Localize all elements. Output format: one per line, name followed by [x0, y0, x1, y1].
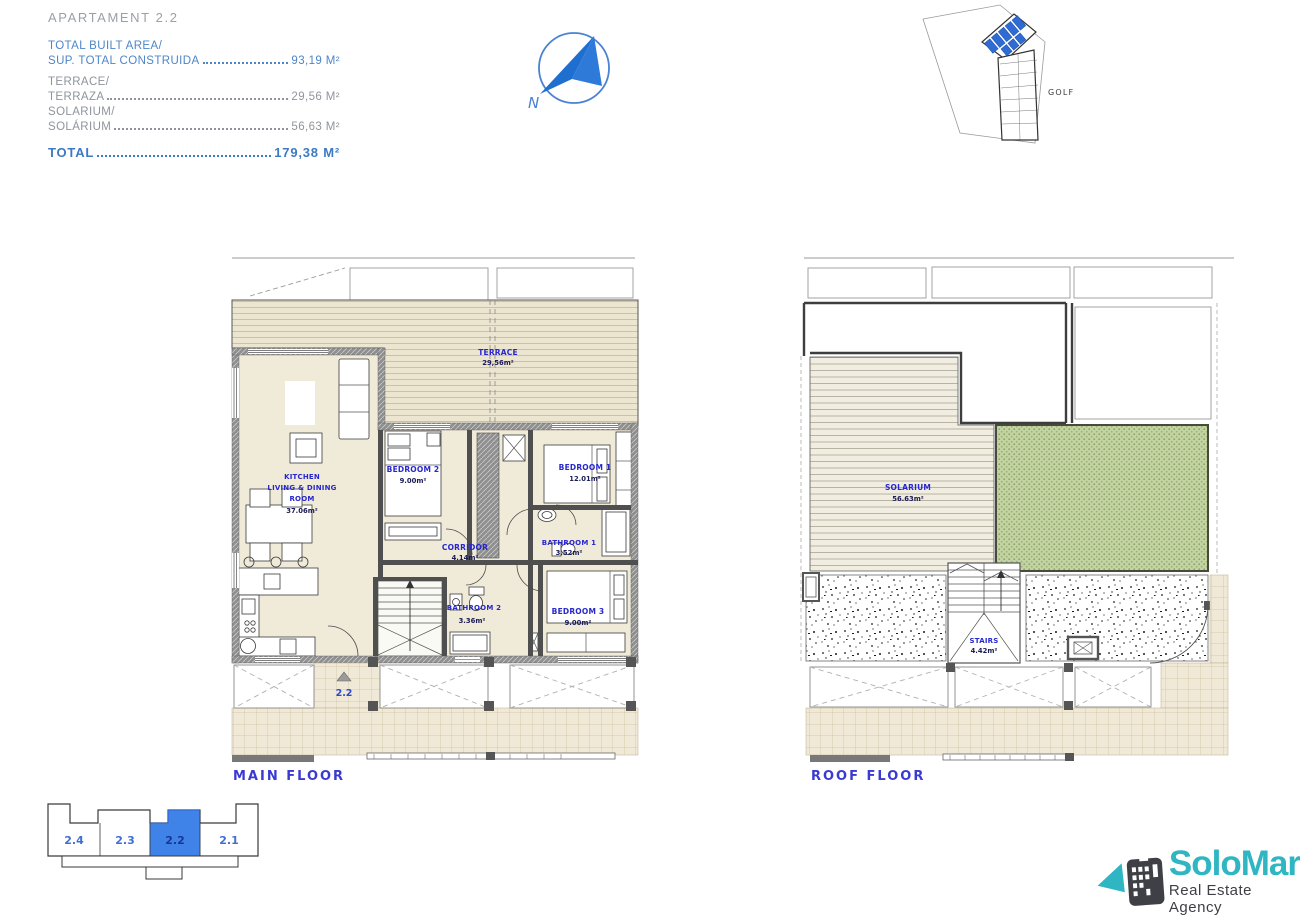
site-location-plan: GOLF — [920, 2, 1145, 150]
bathroom1-label: BATHROOM 1 — [542, 539, 596, 547]
summary-label-en: SOLARIUM/ — [48, 106, 340, 119]
brand-tagline: Real Estate Agency — [1169, 882, 1300, 916]
stairs-label: STAIRS — [970, 637, 999, 645]
bathroom2-area: 3.36m² — [459, 617, 486, 625]
dotted-leader — [114, 119, 288, 130]
solarium-label: SOLARIUM — [885, 483, 931, 492]
bedroom2-area: 9.00m² — [400, 477, 427, 485]
kitchen-label: KITCHEN — [284, 473, 320, 481]
summary-label-es: SUP. TOTAL CONSTRUIDA — [48, 55, 200, 68]
terrace-area: 29,56m² — [482, 359, 514, 367]
page-title: APARTAMENT 2.2 — [48, 10, 340, 25]
bedroom1-area: 12.01m² — [569, 475, 601, 483]
bedroom3-area: 9.00m² — [565, 619, 592, 627]
summary-label-es: SOLÁRIUM — [48, 121, 111, 134]
summary-label-es: TERRAZA — [48, 91, 104, 104]
porch — [232, 657, 638, 762]
north-letter: N — [528, 94, 539, 112]
terrace-label: TERRACE — [478, 348, 518, 357]
dotted-leader — [203, 53, 289, 64]
total-value: 179,38 M² — [274, 146, 340, 159]
entrance-unit-marker: 2.2 — [336, 688, 353, 699]
main-floor-plan: TERRACE 29,56m² KITCHEN LIVING & DINING … — [222, 253, 642, 783]
scale-bar — [810, 755, 890, 762]
selected-unit-highlight — [150, 810, 200, 856]
roof-outline — [232, 258, 635, 300]
kitchen-label: LIVING & DINING — [267, 484, 336, 492]
summary-label-en: TOTAL BUILT AREA/ — [48, 40, 340, 53]
rug — [285, 381, 315, 425]
corridor-label: CORRIDOR — [442, 543, 488, 552]
total-label: TOTAL — [48, 146, 94, 159]
north-compass-icon: N — [524, 24, 620, 120]
logo-mark-icon — [1096, 847, 1165, 915]
bathroom2-label: BATHROOM 2 — [447, 604, 501, 612]
main-floor-title: MAIN FLOOR — [233, 769, 345, 783]
logo-sail-icon — [1098, 863, 1125, 892]
summary-value: 56,63 M² — [291, 121, 340, 134]
kitchen-label: ROOM — [289, 495, 314, 503]
bed — [544, 445, 610, 503]
unit-label-2-4: 2.4 — [64, 834, 84, 847]
building-unit-key: 2.4 2.3 2.2 2.1 — [40, 792, 270, 892]
bedroom2-label: BEDROOM 2 — [387, 465, 440, 474]
dotted-leader — [97, 146, 271, 157]
kitchen-area: 37.06m² — [286, 507, 318, 515]
building-base — [62, 856, 238, 867]
green-roof-area — [996, 425, 1208, 571]
roof-porch — [806, 663, 1228, 762]
summary-item-built-area: TOTAL BUILT AREA/ SUP. TOTAL CONSTRUIDA … — [48, 40, 340, 68]
unit-label-2-2-selected: 2.2 — [165, 834, 185, 847]
summary-value: 93,19 M² — [291, 55, 340, 68]
bathroom1-area: 3.52m² — [556, 549, 583, 557]
roof-floor-plan: SOLARIUM 56.63m² STAIRS 4.42m² ROOF FLOO… — [798, 253, 1238, 783]
golf-label: GOLF — [1048, 88, 1074, 97]
summary-value: 29,56 M² — [291, 91, 340, 104]
summary-total: TOTAL 179,38 M² — [48, 146, 340, 159]
brand-name: SoloMar — [1169, 846, 1300, 881]
staircase — [378, 580, 442, 656]
solarium-area: 56.63m² — [892, 495, 924, 503]
bedroom1-label: BEDROOM 1 — [559, 463, 612, 472]
summary-label-en: TERRACE/ — [48, 76, 340, 89]
corridor-area: 4.14m² — [452, 554, 479, 562]
summary-item-solarium: SOLARIUM/ SOLÁRIUM 56,63 M² — [48, 106, 340, 134]
bedroom3-label: BEDROOM 3 — [552, 607, 605, 616]
dotted-leader — [107, 89, 288, 100]
scale-bar-ticks — [943, 754, 1071, 760]
roof-floor-title: ROOF FLOOR — [811, 769, 925, 783]
unit-label-2-3: 2.3 — [115, 834, 135, 847]
agency-logo: SoloMar Real Estate Agency — [1096, 845, 1300, 917]
summary-item-terrace: TERRACE/ TERRAZA 29,56 M² — [48, 76, 340, 104]
kitchen-island — [237, 568, 318, 595]
solarium-deck — [810, 357, 994, 571]
stairs-area: 4.42m² — [971, 647, 998, 655]
bedroom2-furniture — [385, 431, 441, 540]
building-base-tab — [146, 867, 182, 879]
scale-bar — [232, 755, 314, 762]
unit-label-2-1: 2.1 — [219, 834, 239, 847]
logo-building-icon — [1126, 854, 1165, 906]
